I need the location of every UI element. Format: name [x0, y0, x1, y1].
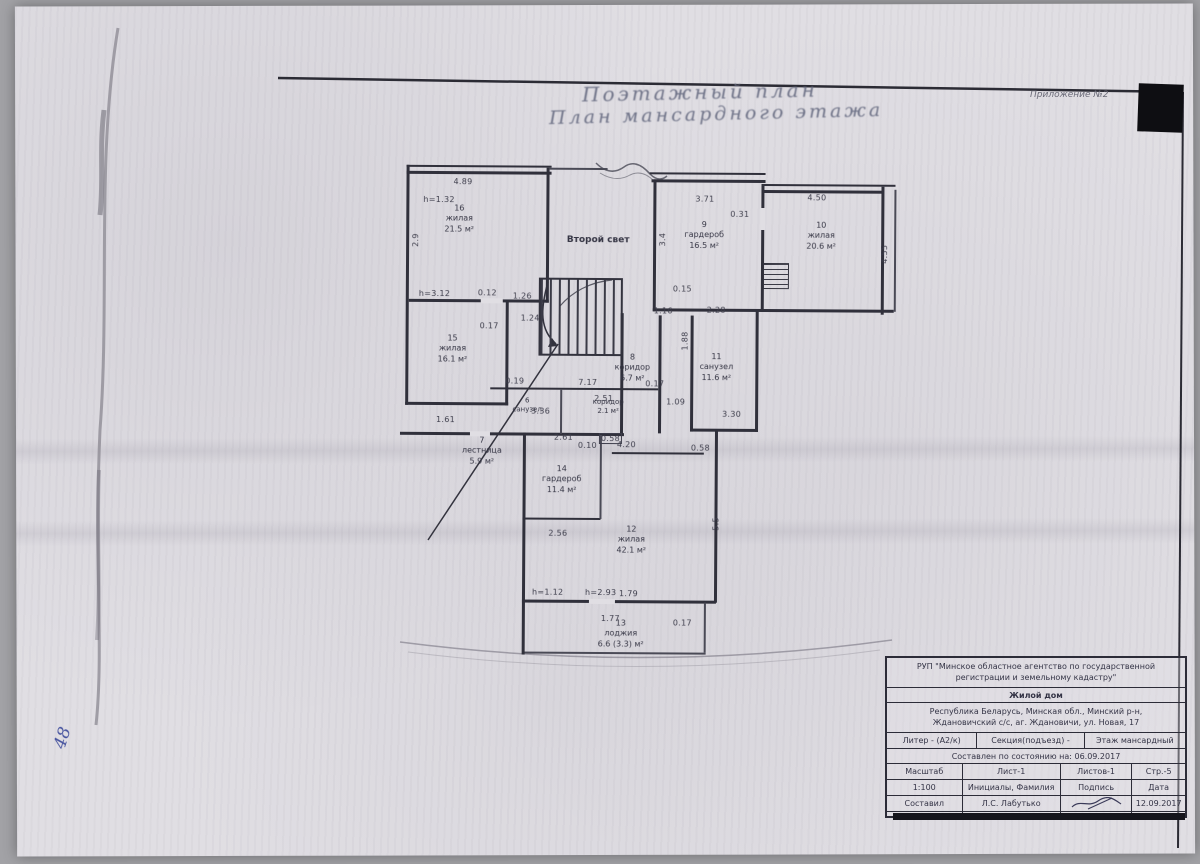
room-label: 16 жилая 21.5 м²	[444, 203, 474, 234]
room-name: гардероб	[684, 230, 724, 241]
room-name: лестница	[462, 446, 502, 457]
signature	[1068, 797, 1124, 810]
ladder	[763, 263, 789, 289]
door-gap	[760, 208, 765, 230]
scan-black-mark	[1137, 83, 1184, 133]
dimension-label: 2.56	[548, 529, 567, 538]
wall	[653, 308, 894, 312]
liter-cell: Литер - (А2/к)	[887, 733, 976, 748]
room-label: 14 гардероб 11.4 м²	[542, 464, 582, 495]
date-header: Дата	[1131, 780, 1185, 795]
wall	[522, 600, 716, 604]
room-number: 10	[806, 221, 836, 232]
row-name: Л.С. Лабутько	[962, 796, 1060, 811]
dimension-label: 1.79	[619, 589, 638, 598]
dimension-label: 3.4	[658, 233, 667, 247]
dimension-label: 1.77	[601, 614, 620, 623]
dimension-label: 0.17	[480, 321, 499, 330]
dimension-label: 1.26	[513, 291, 532, 300]
room-area: 21.5 м²	[444, 224, 474, 235]
room-name: жилая	[438, 344, 468, 355]
dimension-label: 4.89	[453, 177, 472, 186]
dimension-label: 1.09	[666, 397, 685, 406]
wall	[704, 603, 706, 653]
dimension-label: 1.61	[436, 415, 455, 424]
dimension-label: h=2.93	[585, 588, 616, 597]
wall	[599, 435, 602, 519]
dimension-label: h=1.12	[532, 588, 563, 597]
dimension-label: 1.16	[654, 306, 673, 315]
wall	[560, 390, 562, 434]
room-area: 6.6 (3.3) м²	[598, 639, 644, 650]
dimension-label: 0.12	[478, 288, 497, 297]
room-number: 14	[542, 464, 582, 475]
dimension-label: 1.24	[521, 314, 540, 323]
room-area: 16.5 м²	[684, 241, 724, 252]
wall	[524, 652, 706, 655]
room-number: 16	[445, 203, 475, 214]
room-label: 9 гардероб 16.5 м²	[684, 220, 724, 251]
wall	[400, 432, 624, 436]
room-number: 12	[617, 525, 647, 536]
sheets-cell: Листов-1	[1060, 764, 1132, 779]
dimension-label: 0.17	[673, 618, 692, 627]
room-number: 15	[438, 333, 468, 344]
room-area: 16.1 м²	[438, 354, 468, 365]
wall	[755, 311, 759, 432]
room-number: 8	[615, 353, 651, 364]
dimension-label: 0.58	[691, 444, 710, 453]
room-area: 2.1 м²	[593, 407, 624, 416]
room-name: жилая	[444, 214, 474, 225]
sign-header: Подпись	[1060, 780, 1132, 795]
row-signature	[1060, 796, 1132, 811]
dimension-label: 3.30	[722, 410, 741, 419]
wall	[407, 165, 552, 168]
room-number: 11	[700, 352, 734, 363]
floor-cell: Этаж мансардный	[1084, 733, 1185, 748]
dimension-label: 2.61	[554, 433, 573, 442]
room-area: 11.6 м²	[700, 373, 734, 384]
room-label: 12 жилая 42.1 м²	[616, 525, 646, 556]
dimension-label: 3.71	[695, 195, 714, 204]
room-number: 6	[512, 396, 541, 405]
address-line1: Республика Беларусь, Минская обл., Минск…	[930, 707, 1143, 718]
room-number: 7	[462, 436, 502, 447]
org-line1: РУП "Минское областное агентство по госу…	[917, 662, 1155, 673]
dimension-label: 4.20	[617, 440, 636, 449]
dimension-label: 2.9	[411, 233, 420, 247]
dimension-label: 2.51	[594, 394, 613, 403]
dimension-label: 0.31	[730, 210, 749, 219]
room-area: 20.6 м²	[806, 241, 836, 252]
room-name: лоджия	[598, 629, 644, 640]
scale-label: Масштаб	[887, 764, 962, 779]
staircase	[538, 278, 622, 357]
dimension-label: 5.5	[711, 517, 720, 531]
room-label: 15 жилая 16.1 м²	[438, 333, 468, 364]
room-label: 10 жилая 20.6 м²	[806, 221, 836, 252]
scale-value: 1:100	[887, 780, 962, 795]
room-area: 42.1 м²	[616, 545, 646, 556]
room-name: гардероб	[542, 474, 582, 485]
room-name: жилая	[806, 231, 836, 242]
wall	[407, 171, 552, 175]
room-label: Второй свет	[567, 235, 630, 247]
title-block: РУП "Минское областное агентство по госу…	[885, 656, 1187, 818]
room-name: Второй свет	[567, 235, 630, 247]
wall	[650, 172, 766, 175]
object-address: Республика Беларусь, Минская обл., Минск…	[887, 703, 1185, 732]
dimension-label: 0.10	[578, 441, 597, 450]
wall	[652, 179, 766, 183]
dimension-label: h=3.12	[419, 289, 450, 298]
sheet-cell: Лист-1	[962, 764, 1060, 779]
dimension-label: 2.28	[707, 306, 726, 315]
wall	[522, 433, 526, 655]
wall	[761, 184, 895, 187]
wall	[894, 190, 897, 312]
room-area: 11.4 м²	[542, 485, 582, 496]
room-area: 5.9 м²	[462, 456, 502, 467]
wall	[505, 301, 509, 405]
org-line2: регистрации и земельному кадастру"	[956, 673, 1117, 684]
door-gap	[589, 599, 615, 604]
org-name: РУП "Минское областное агентство по госу…	[887, 658, 1185, 687]
room-label: 13 лоджия 6.6 (3.3) м²	[598, 618, 644, 649]
scan-black-bar	[893, 813, 1185, 820]
dimension-label: 4.50	[807, 193, 826, 202]
address-line2: Ждановичский с/с, аг. Ждановичи, ул. Нов…	[933, 718, 1139, 729]
room-name: жилая	[616, 535, 646, 546]
room-label: 7 лестница 5.9 м²	[462, 436, 502, 467]
room-number: 9	[684, 220, 724, 231]
wall	[690, 316, 694, 432]
room-name: санузел	[700, 362, 734, 373]
dimension-label: 0.19	[505, 376, 524, 385]
dimension-label: 0.17	[645, 379, 664, 388]
section-cell: Секция(подъезд) -	[976, 733, 1083, 748]
appendix-label: Приложение №2	[1030, 90, 1108, 100]
dimension-label: 7.17	[578, 378, 597, 387]
wall	[658, 315, 662, 433]
page-cell: Стр.-5	[1131, 764, 1185, 779]
wall	[653, 179, 657, 311]
row-date: 12.09.2017	[1131, 796, 1185, 811]
door-gap	[481, 298, 503, 303]
name-header: Инициалы, Фамилия	[962, 780, 1060, 795]
dimension-label: 1.88	[680, 331, 689, 350]
wall	[405, 165, 409, 405]
wall	[490, 387, 658, 390]
dimension-label: 3.36	[531, 407, 550, 416]
wall	[405, 402, 508, 406]
dimension-label: h=1.32	[423, 195, 454, 204]
object-type: Жилой дом	[887, 688, 1185, 702]
room-name: коридор	[615, 363, 651, 374]
wall	[522, 518, 600, 520]
wall	[761, 186, 765, 312]
wall	[550, 168, 608, 170]
wall	[690, 429, 758, 432]
dimension-label: 4.55	[880, 245, 889, 264]
dimension-label: 0.15	[673, 284, 692, 293]
row-role: Составил	[887, 796, 962, 811]
date-note: Составлен по состоянию на: 06.09.2017	[887, 749, 1185, 763]
room-label: 11 санузел 11.6 м²	[700, 352, 734, 383]
